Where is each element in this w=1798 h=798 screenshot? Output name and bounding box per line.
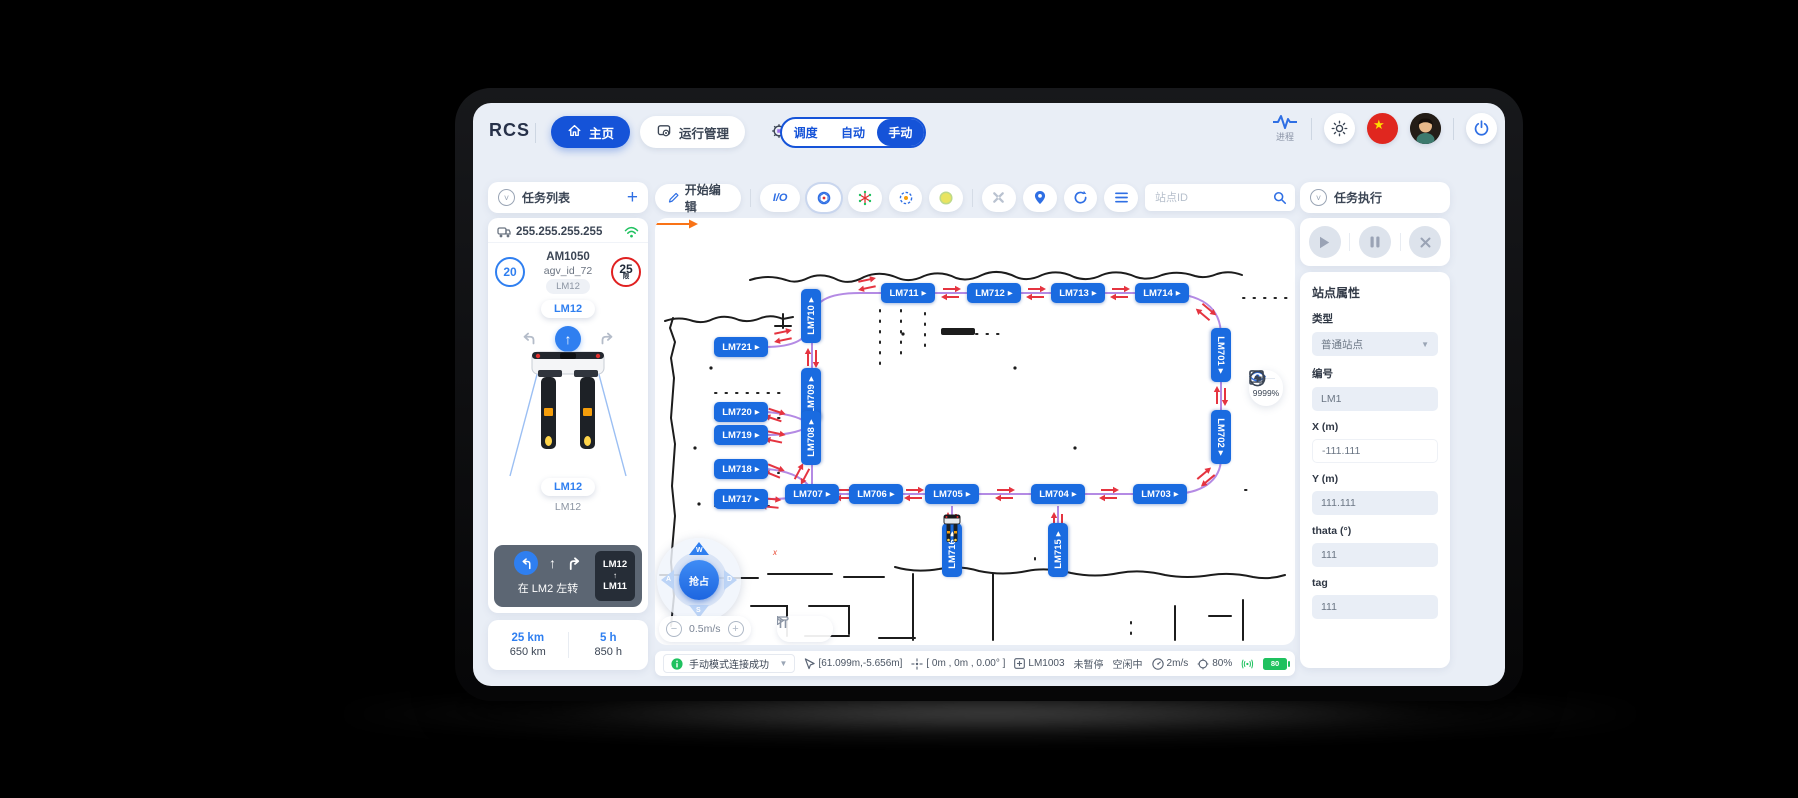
pause-state: 未暂停 xyxy=(1074,656,1104,671)
station-properties-panel: 站点属性 类型普通站点▼编号LM1X (m)-111.111Y (m)111.1… xyxy=(1300,272,1450,668)
dotted-target-icon xyxy=(898,190,914,206)
task-exec-title: 任务执行 xyxy=(1334,189,1440,206)
stage: RCS 主页 运行管理 设备管理 调度 自动 手动 xyxy=(0,0,1798,798)
field-label: thata (°) xyxy=(1312,525,1438,537)
agv-graphic xyxy=(488,350,648,478)
station-label: LM709 xyxy=(806,384,817,414)
station-label: LM713 xyxy=(1059,288,1089,299)
avatar-icon xyxy=(1410,113,1441,144)
station-label: LM715 xyxy=(1053,539,1064,569)
header-divider xyxy=(1453,118,1454,140)
station-arrow-icon: ▶ xyxy=(922,289,927,297)
direction-arrows xyxy=(856,275,879,293)
agv-direction-controls: ↑ xyxy=(488,326,648,352)
process-button[interactable]: 进程 xyxy=(1273,114,1297,143)
search-icon[interactable] xyxy=(1273,191,1287,205)
power-button[interactable] xyxy=(1466,113,1497,144)
field-label: tag xyxy=(1312,577,1438,589)
station-label: LM702 xyxy=(1216,418,1227,448)
turn-left-button[interactable] xyxy=(514,551,538,575)
straight-icon[interactable]: ↑ xyxy=(549,555,556,571)
wifi-icon xyxy=(624,226,639,238)
mode-dispatch[interactable]: 调度 xyxy=(782,119,829,146)
station-label: LM717 xyxy=(722,494,752,505)
turn-right-icon[interactable] xyxy=(567,556,582,571)
mode-auto[interactable]: 自动 xyxy=(829,119,876,146)
agv-card[interactable]: 255.255.255.255 20 AM1050 agv_id_72 LM12… xyxy=(488,218,648,613)
station-arrow-icon: ▶ xyxy=(890,490,895,498)
cross-move-icon xyxy=(991,190,1006,205)
node-tool-button[interactable] xyxy=(889,184,923,212)
undo-arrow-icon[interactable] xyxy=(520,330,538,348)
status-bar: 手动模式连接成功 ▼ [61.099m,-5.656m] [ 0m , 0m ,… xyxy=(655,651,1295,676)
field-label: 编号 xyxy=(1312,366,1438,381)
station-node-LM713[interactable]: LM713▶ xyxy=(1051,283,1105,303)
chevron-down-icon[interactable]: ˅ xyxy=(498,189,515,206)
language-button[interactable]: ★ xyxy=(1367,113,1398,144)
axis-x-label: x xyxy=(773,548,777,557)
station-node-LM711[interactable]: LM711▶ xyxy=(881,283,935,303)
field-input[interactable]: LM1 xyxy=(1312,387,1438,411)
station-node-LM720[interactable]: LM720▶ xyxy=(714,402,768,422)
menu-lines-icon xyxy=(1114,191,1129,204)
field-label: Y (m) xyxy=(1312,473,1438,485)
speed-plus-button[interactable]: + xyxy=(728,621,744,637)
station-arrow-icon: ▶ xyxy=(807,376,815,381)
mode-toggle: 调度 自动 手动 xyxy=(780,117,926,148)
field-value: -111.111 xyxy=(1322,445,1360,457)
turn-left-icon xyxy=(520,557,533,570)
task-count-badge: 20 xyxy=(495,257,525,287)
home-icon xyxy=(567,123,582,141)
stat-value: 5 h xyxy=(600,632,617,644)
station-arrow-icon: ▶ xyxy=(1054,531,1062,536)
cursor-icon xyxy=(804,658,815,670)
fork-play-icon xyxy=(777,616,784,625)
agv-id: agv_id_72 xyxy=(544,265,592,277)
station-arrow-icon: ▶ xyxy=(1217,451,1225,456)
properties-title: 站点属性 xyxy=(1312,284,1438,301)
station-label: LM708 xyxy=(806,427,817,457)
station-label: LM711 xyxy=(889,288,918,299)
waveform-icon xyxy=(1273,114,1297,129)
stat-column: 25 km650 km xyxy=(488,632,568,658)
station-search-input[interactable] xyxy=(1153,191,1273,205)
station-node-LM719[interactable]: LM719▶ xyxy=(714,425,768,445)
station-arrow-icon: ▶ xyxy=(755,431,760,439)
field-label: X (m) xyxy=(1312,421,1438,433)
plus-square-icon xyxy=(1014,658,1025,669)
add-task-button[interactable]: + xyxy=(627,188,638,207)
speed-minus-button[interactable]: − xyxy=(666,621,682,637)
forward-button[interactable]: ↑ xyxy=(555,326,581,352)
station-label: LM705 xyxy=(933,489,963,500)
station-node-LM712[interactable]: LM712▶ xyxy=(967,283,1021,303)
field-input[interactable]: 111 xyxy=(1312,543,1438,567)
station-node-LM703[interactable]: LM703▶ xyxy=(1133,484,1187,504)
station-node-LM721[interactable]: LM721▶ xyxy=(714,337,768,357)
task-list-header: ˅ 任务列表 + xyxy=(488,182,648,213)
battery-indicator: 80 xyxy=(1263,658,1287,670)
field-value: 111 xyxy=(1321,601,1337,613)
yellow-circle-icon xyxy=(938,190,954,206)
header-divider xyxy=(1311,118,1312,140)
field-input[interactable]: 111 xyxy=(1312,595,1438,619)
station-node-LM706[interactable]: LM706▶ xyxy=(849,484,903,504)
stat-total: 650 km xyxy=(510,646,546,658)
agv-ip-row: 255.255.255.255 xyxy=(488,218,648,243)
user-avatar[interactable] xyxy=(1410,113,1441,144)
locate-tool-button[interactable] xyxy=(1023,184,1057,212)
station-label: LM721 xyxy=(722,342,752,353)
axis-x-arrow xyxy=(655,218,699,230)
direction-arrows xyxy=(772,327,795,345)
info-icon xyxy=(671,658,683,670)
mode-manual[interactable]: 手动 xyxy=(877,119,924,146)
stat-value: 25 km xyxy=(511,632,544,644)
station-node-LM701[interactable]: LM701▶ xyxy=(1211,328,1231,382)
station-arrow-icon: ▶ xyxy=(1174,490,1179,498)
station-label: LM714 xyxy=(1143,288,1173,299)
station-label: LM703 xyxy=(1141,489,1171,500)
layers-menu-button[interactable] xyxy=(1104,184,1138,212)
station-arrow-icon: ▶ xyxy=(1176,289,1181,297)
pause-button[interactable] xyxy=(1359,226,1391,258)
status-speed: 2m/s xyxy=(1152,658,1189,670)
station-arrow-icon: ▶ xyxy=(755,343,760,351)
speed-limit-badge: 25 限 xyxy=(611,257,641,287)
task-list-title: 任务列表 xyxy=(522,189,627,206)
properties-fields: 类型普通站点▼编号LM1X (m)-111.111Y (m)111.111tha… xyxy=(1312,311,1438,619)
nav-instruction-block: ↑ 在 LM2 左转 xyxy=(501,551,595,601)
agv-model: AM1050 xyxy=(546,251,589,263)
forklift-graphic xyxy=(488,350,648,478)
station-arrow-icon: ▶ xyxy=(807,297,815,302)
station-tool-button[interactable] xyxy=(807,184,841,212)
location-pin-icon xyxy=(1033,190,1047,205)
stop-button[interactable] xyxy=(1409,226,1441,258)
zoom-percent: 9999% xyxy=(1253,388,1279,398)
battery-icon: 80 xyxy=(1263,658,1287,670)
nav-tab-operation[interactable]: 运行管理 xyxy=(640,116,745,148)
agv-ip: 255.255.255.255 xyxy=(516,226,619,238)
joystick-pad[interactable]: W A D S 抢占 xyxy=(657,538,741,622)
station-label: LM706 xyxy=(857,489,887,500)
station-node-LM710[interactable]: LM710▶ xyxy=(801,289,821,343)
asterisk-icon xyxy=(857,190,873,206)
agv-summary: 20 AM1050 agv_id_72 LM12 25 限 xyxy=(488,243,648,294)
station-node-LM708[interactable]: LM708▶ xyxy=(801,411,821,465)
task-exec-controls xyxy=(1300,218,1450,266)
theme-button[interactable] xyxy=(1324,113,1355,144)
station-label: LM718 xyxy=(722,464,752,475)
field-value: 111.111 xyxy=(1321,497,1356,509)
io-button[interactable]: I/O xyxy=(760,184,800,212)
target-station-pill: LM12 xyxy=(541,478,595,496)
station-label: LM707 xyxy=(793,489,823,500)
agv-stats-card: 25 km650 km5 h850 h xyxy=(488,620,648,670)
refresh-icon xyxy=(1073,190,1088,205)
nav-tab-home[interactable]: 主页 xyxy=(551,116,630,148)
controls-divider xyxy=(1400,233,1401,251)
area-tool-button[interactable] xyxy=(929,184,963,212)
station-node-LM705[interactable]: LM705▶ xyxy=(925,484,979,504)
station-node-LM715[interactable]: LM715▶ xyxy=(1048,523,1068,577)
station-sub-label: LM12 xyxy=(488,501,648,513)
app-logo: RCS xyxy=(489,120,530,141)
chevron-down-icon: ▼ xyxy=(780,659,788,668)
station-node-LM707[interactable]: LM707▶ xyxy=(785,484,839,504)
redo-arrow-icon[interactable] xyxy=(598,330,616,348)
station-arrow-icon: ▶ xyxy=(1008,289,1013,297)
monitor-icon xyxy=(656,123,672,142)
status-message: 手动模式连接成功 xyxy=(689,656,774,671)
chevron-down-icon[interactable]: ˅ xyxy=(1310,189,1327,206)
toolbar-divider xyxy=(750,189,751,207)
cross-tool-button[interactable] xyxy=(982,184,1016,212)
zoom-in-icon[interactable] xyxy=(1249,370,1266,387)
field-value: 普通站点 xyxy=(1321,337,1363,352)
nav-instruction: 在 LM2 左转 xyxy=(518,580,579,596)
seize-button[interactable]: 抢占 xyxy=(679,560,719,600)
station-label: LM710 xyxy=(806,305,817,335)
station-label: LM704 xyxy=(1039,489,1069,500)
chevron-down-icon: ▼ xyxy=(1421,340,1429,349)
vehicle-icon xyxy=(497,227,511,238)
station-node-LM718[interactable]: LM718▶ xyxy=(714,459,768,479)
fork-control[interactable] xyxy=(777,616,833,642)
station-node-LM714[interactable]: LM714▶ xyxy=(1135,283,1189,303)
status-percent: 80% xyxy=(1197,658,1232,670)
station-label: LM701 xyxy=(1216,336,1227,366)
agv-station-chip: LM12 xyxy=(546,279,590,294)
toolbar-divider xyxy=(972,189,973,207)
field-select[interactable]: 普通站点▼ xyxy=(1312,332,1438,356)
stat-column: 5 h850 h xyxy=(569,632,649,658)
cursor-position: [61.099m,-5.656m] xyxy=(804,658,902,670)
header-icons: 进程 ★ xyxy=(1273,113,1497,144)
station-arrow-icon: ▶ xyxy=(807,419,815,424)
station-arrow-icon: ▶ xyxy=(1217,369,1225,374)
agv-identity: AM1050 agv_id_72 LM12 xyxy=(544,251,592,294)
field-value: LM1 xyxy=(1321,393,1341,405)
map-canvas[interactable]: LM711▶LM712▶LM713▶LM714▶LM710▶LM721▶LM70… xyxy=(655,218,1295,645)
station-target-icon xyxy=(816,190,832,206)
sun-icon xyxy=(1331,120,1348,137)
app-screen: RCS 主页 运行管理 设备管理 调度 自动 手动 xyxy=(473,103,1505,686)
start-edit-button[interactable]: 开始编辑 xyxy=(655,184,741,212)
junction-tool-button[interactable] xyxy=(848,184,882,212)
robot-pose: [ 0m , 0m , 0.00° ] xyxy=(911,658,1005,670)
station-arrow-icon: ▶ xyxy=(966,490,971,498)
idle-state: 空闲中 xyxy=(1113,656,1143,671)
station-node-LM702[interactable]: LM702▶ xyxy=(1211,410,1231,464)
station-arrow-icon: ▶ xyxy=(755,465,760,473)
app-header: RCS 主页 运行管理 设备管理 调度 自动 手动 xyxy=(473,103,1505,163)
map-toolbar: 开始编辑 I/O xyxy=(655,182,1295,213)
station-node-LM704[interactable]: LM704▶ xyxy=(1031,484,1085,504)
controls-divider xyxy=(1349,233,1350,251)
pencil-icon xyxy=(668,191,680,204)
direction-arrows xyxy=(791,462,813,486)
field-label: 类型 xyxy=(1312,311,1438,326)
route-indicator: LM12 ↑ LM11 xyxy=(595,551,635,601)
task-exec-header: ˅ 任务执行 xyxy=(1300,182,1450,213)
station-arrow-icon: ▶ xyxy=(755,408,760,416)
station-search xyxy=(1145,184,1295,211)
current-station-pill: LM12 xyxy=(541,300,595,318)
station-label: LM720 xyxy=(722,407,752,418)
signal-icon xyxy=(1241,658,1254,670)
speed-control: − 0.5m/s + xyxy=(659,616,751,642)
field-input[interactable]: 111.111 xyxy=(1312,491,1438,515)
gear-small-icon xyxy=(1197,658,1209,670)
field-value: 111 xyxy=(1321,549,1337,561)
speedometer-icon xyxy=(1152,658,1164,670)
map-view-controls: 9999% xyxy=(1249,370,1283,406)
status-message-select[interactable]: 手动模式连接成功 ▼ xyxy=(663,654,795,673)
station-arrow-icon: ▶ xyxy=(1092,289,1097,297)
navigation-panel: ↑ 在 LM2 左转 LM12 ↑ LM11 xyxy=(494,545,642,607)
power-icon xyxy=(1473,120,1490,137)
field-input[interactable]: -111.111 xyxy=(1312,439,1438,463)
flag-icon: ★ xyxy=(1373,117,1385,133)
station-arrow-icon: ▶ xyxy=(755,495,760,503)
agv-map-marker[interactable] xyxy=(943,514,961,544)
station-label: LM719 xyxy=(722,430,752,441)
speed-value: 0.5m/s xyxy=(689,623,721,635)
status-station: LM1003 xyxy=(1014,658,1064,669)
station-arrow-icon: ▶ xyxy=(826,490,831,498)
station-arrow-icon: ▶ xyxy=(1072,490,1077,498)
station-label: LM712 xyxy=(975,288,1005,299)
stat-total: 850 h xyxy=(594,646,622,658)
refresh-button[interactable] xyxy=(1064,184,1098,212)
crosshair-icon xyxy=(911,658,923,670)
play-button[interactable] xyxy=(1309,226,1341,258)
logo-divider xyxy=(535,123,536,143)
station-node-LM717[interactable]: LM717▶ xyxy=(714,489,768,509)
